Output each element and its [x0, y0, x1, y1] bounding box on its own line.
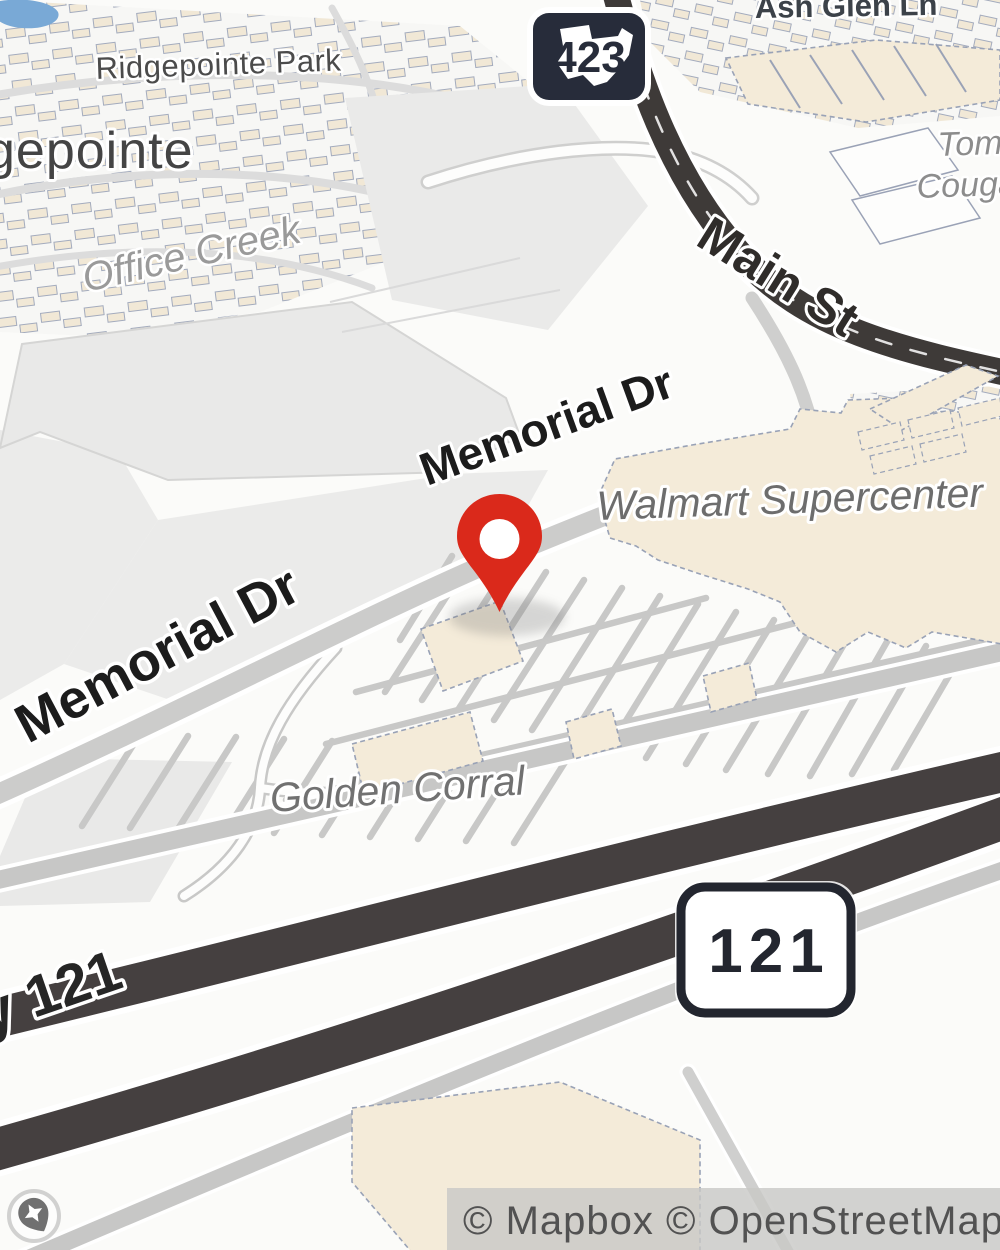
attribution-text[interactable]: © Mapbox © OpenStreetMap — [463, 1199, 1000, 1243]
label-poi-right-1: Tomm — [937, 123, 1000, 164]
label-poi-right-2: Couga — [916, 165, 1000, 206]
attribution-bar: © Mapbox © OpenStreetMap — [447, 1188, 1000, 1250]
label-ridgepointe-city: gepointe — [0, 122, 194, 180]
route-shield-121-number: 121 — [708, 917, 829, 986]
route-shield-423: 423 — [527, 7, 651, 106]
mapbox-logo[interactable] — [9, 1191, 59, 1241]
route-shield-121: 121 — [675, 881, 857, 1019]
pin-shadow — [449, 598, 565, 636]
map-viewport[interactable]: 423 121 Ridgepointe Park gepointe Office… — [0, 0, 1000, 1250]
map-canvas[interactable]: 423 121 Ridgepointe Park gepointe Office… — [0, 0, 1000, 1250]
pin-hole — [480, 519, 520, 559]
label-ash-glen-ln: Ash Glen Ln — [755, 0, 938, 25]
route-shield-423-number: 423 — [552, 33, 625, 82]
